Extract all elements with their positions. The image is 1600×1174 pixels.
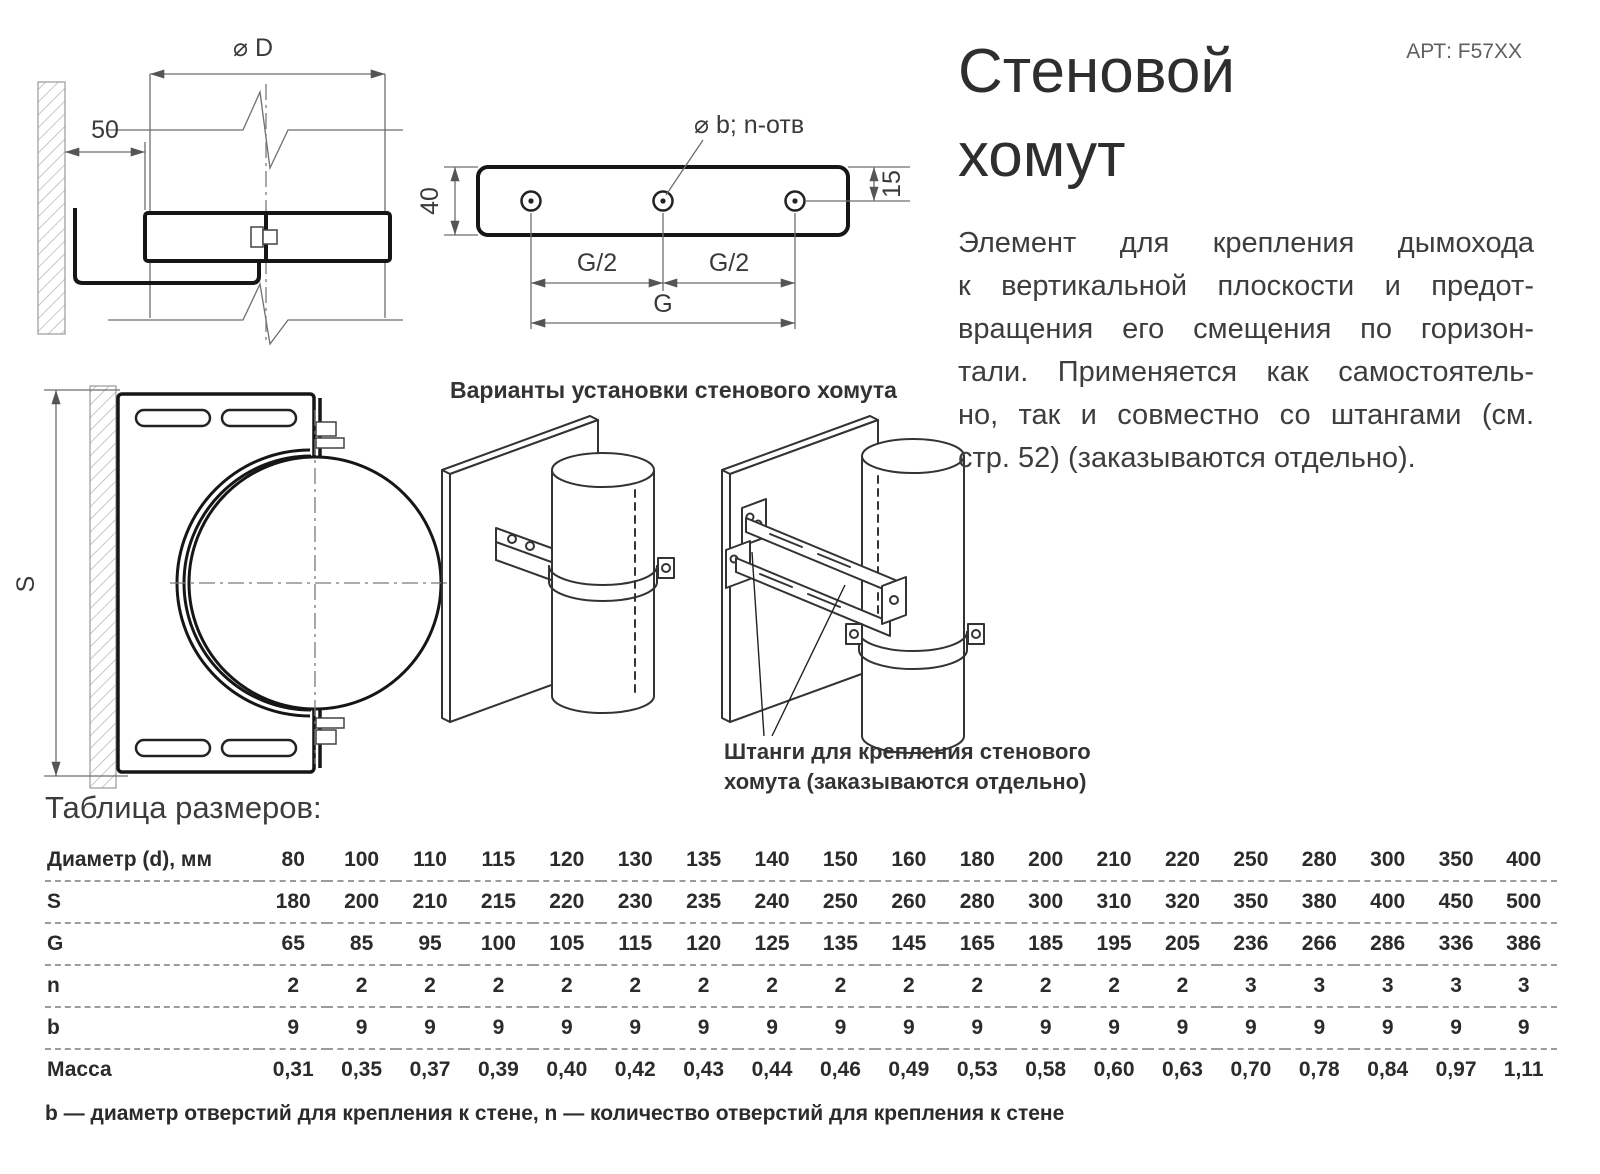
size-table-footnote: b — диаметр отверстий для крепления к ст… (45, 1102, 1064, 1126)
size-table-cell: 235 (669, 881, 737, 923)
size-table-cell: 2 (396, 965, 464, 1007)
size-table-cell: 300 (1354, 840, 1422, 881)
dim-height-label: 40 (416, 187, 444, 215)
size-table-cell: 320 (1148, 881, 1216, 923)
dim-wall-offset-label: 50 (91, 116, 119, 144)
size-table-cell: 9 (1354, 1007, 1422, 1049)
size-table-cell: 2 (738, 965, 806, 1007)
size-table-cell: 110 (396, 840, 464, 881)
size-table-cell: 9 (1148, 1007, 1216, 1049)
size-table-cell: 9 (738, 1007, 806, 1049)
page-title-line1: Стеновой (958, 30, 1235, 114)
size-table-cell: 180 (259, 881, 327, 923)
size-table-cell: 120 (669, 923, 737, 965)
size-table-row-label: b (45, 1007, 259, 1049)
size-table-row-label: G (45, 923, 259, 965)
size-table-body: Диаметр (d), мм8010011011512013013514015… (45, 840, 1557, 1090)
size-table-cell: 3 (1354, 965, 1422, 1007)
front-view-drawing: S (8, 372, 478, 802)
size-table-cell: 0,40 (533, 1049, 601, 1090)
size-table-cell: 145 (875, 923, 943, 965)
size-table: Диаметр (d), мм8010011011512013013514015… (45, 840, 1557, 1090)
size-table-cell: 230 (601, 881, 669, 923)
description-line: но, так и совместно со штангами (см. (958, 394, 1534, 437)
dim-half-span-left-label: G/2 (577, 249, 617, 277)
size-table-row: S180200210215220230235240250260280300310… (45, 881, 1557, 923)
size-table-cell: 120 (533, 840, 601, 881)
size-table-cell: 0,44 (738, 1049, 806, 1090)
size-table-cell: 2 (943, 965, 1011, 1007)
description-line: тали. Применяется как самостоятель- (958, 351, 1534, 394)
size-table-cell: 500 (1490, 881, 1557, 923)
size-table-cell: 140 (738, 840, 806, 881)
dim-diameter-label: ⌀ D (233, 34, 273, 62)
size-table-cell: 3 (1422, 965, 1490, 1007)
size-table-row-label: S (45, 881, 259, 923)
size-table-cell: 0,49 (875, 1049, 943, 1090)
size-table-cell: 100 (464, 923, 532, 965)
size-table-cell: 266 (1285, 923, 1353, 965)
size-table-cell: 3 (1217, 965, 1285, 1007)
size-table-cell: 2 (1148, 965, 1216, 1007)
size-table-cell: 0,39 (464, 1049, 532, 1090)
size-table-row-label: n (45, 965, 259, 1007)
size-table-cell: 0,35 (327, 1049, 395, 1090)
size-table-cell: 2 (533, 965, 601, 1007)
wall-hatch (38, 82, 65, 334)
size-table-cell: 3 (1490, 965, 1557, 1007)
description-line: вращения его смещения по горизон- (958, 308, 1534, 351)
size-table-cell: 9 (1011, 1007, 1079, 1049)
size-table-cell: 450 (1422, 881, 1490, 923)
size-table-cell: 85 (327, 923, 395, 965)
size-table-cell: 9 (669, 1007, 737, 1049)
size-table-cell: 220 (1148, 840, 1216, 881)
size-table-cell: 0,46 (806, 1049, 874, 1090)
size-table-cell: 9 (1285, 1007, 1353, 1049)
size-table-cell: 9 (1490, 1007, 1557, 1049)
size-table-cell: 260 (875, 881, 943, 923)
pipe-break-top (108, 92, 403, 168)
size-table-cell: 250 (806, 881, 874, 923)
size-table-row: b9999999999999999999 (45, 1007, 1557, 1049)
size-table-cell: 0,58 (1011, 1049, 1079, 1090)
size-table-cell: 2 (327, 965, 395, 1007)
size-table-cell: 9 (327, 1007, 395, 1049)
size-table-row: n2222222222222233333 (45, 965, 1557, 1007)
size-table-cell: 125 (738, 923, 806, 965)
size-table-cell: 240 (738, 881, 806, 923)
size-table-cell: 195 (1080, 923, 1148, 965)
size-table-cell: 2 (806, 965, 874, 1007)
strip-view-drawing: ⌀ b; n-отв 40 15 G/2 G/2 G (398, 95, 918, 345)
size-table-cell: 0,97 (1422, 1049, 1490, 1090)
dim-s-label: S (12, 576, 40, 593)
size-table-cell: 9 (1080, 1007, 1148, 1049)
catalog-page: ⌀ D 50 ⌀ b; n-отв 40 (0, 0, 1600, 1174)
size-table-cell: 250 (1217, 840, 1285, 881)
size-table-cell: 150 (806, 840, 874, 881)
size-table-cell: 205 (1148, 923, 1216, 965)
size-table-cell: 9 (259, 1007, 327, 1049)
size-table-cell: 2 (464, 965, 532, 1007)
dim-full-span-label: G (653, 290, 672, 318)
size-table-cell: 2 (1011, 965, 1079, 1007)
size-table-cell: 0,60 (1080, 1049, 1148, 1090)
size-table-cell: 0,37 (396, 1049, 464, 1090)
dim-half-span-right-label: G/2 (709, 249, 749, 277)
size-table-cell: 2 (601, 965, 669, 1007)
page-title-line2: хомут (958, 114, 1235, 198)
size-table-cell: 0,78 (1285, 1049, 1353, 1090)
size-table-cell: 135 (806, 923, 874, 965)
size-table-cell: 336 (1422, 923, 1490, 965)
size-table-cell: 0,43 (669, 1049, 737, 1090)
wall-hatch (90, 386, 116, 788)
holes-callout-label: ⌀ b; n-отв (694, 111, 804, 139)
size-table-cell: 0,63 (1148, 1049, 1216, 1090)
size-table-cell: 9 (1422, 1007, 1490, 1049)
size-table-cell: 185 (1011, 923, 1079, 965)
article-number: АРТ: F57XX (1406, 40, 1522, 64)
size-table-cell: 9 (806, 1007, 874, 1049)
size-table-cell: 0,42 (601, 1049, 669, 1090)
size-table-cell: 165 (943, 923, 1011, 965)
size-table-cell: 200 (1011, 840, 1079, 881)
pipe-break-bottom (108, 284, 403, 344)
side-view-drawing: ⌀ D 50 (8, 30, 418, 350)
size-table-cell: 1,11 (1490, 1049, 1557, 1090)
size-table-cell: 286 (1354, 923, 1422, 965)
size-table-cell: 200 (327, 881, 395, 923)
size-table-cell: 9 (601, 1007, 669, 1049)
bolt (251, 227, 263, 247)
size-table-cell: 9 (396, 1007, 464, 1049)
description-line: стр. 52) (заказываются отдельно). (958, 437, 1534, 480)
size-table-cell: 9 (875, 1007, 943, 1049)
size-table-cell: 65 (259, 923, 327, 965)
size-table-cell: 115 (464, 840, 532, 881)
size-table-cell: 0,31 (259, 1049, 327, 1090)
size-table-cell: 95 (396, 923, 464, 965)
size-table-cell: 310 (1080, 881, 1148, 923)
size-table-cell: 2 (669, 965, 737, 1007)
size-table-cell: 350 (1422, 840, 1490, 881)
size-table-cell: 0,70 (1217, 1049, 1285, 1090)
size-table-cell: 2 (259, 965, 327, 1007)
size-table-cell: 115 (601, 923, 669, 965)
size-table-cell: 180 (943, 840, 1011, 881)
size-table-cell: 3 (1285, 965, 1353, 1007)
size-table-cell: 9 (1217, 1007, 1285, 1049)
size-table-cell: 350 (1217, 881, 1285, 923)
size-table-row: Диаметр (d), мм8010011011512013013514015… (45, 840, 1557, 881)
description-line: к вертикальной плоскости и предот- (958, 265, 1534, 308)
size-table-cell: 9 (943, 1007, 1011, 1049)
size-table-cell: 160 (875, 840, 943, 881)
size-table-cell: 0,53 (943, 1049, 1011, 1090)
size-table-cell: 400 (1354, 881, 1422, 923)
size-table-row-label: Диаметр (d), мм (45, 840, 259, 881)
size-table-cell: 105 (533, 923, 601, 965)
description-line: Элемент для крепления дымохода (958, 222, 1534, 265)
size-table-cell: 0,84 (1354, 1049, 1422, 1090)
size-table-cell: 100 (327, 840, 395, 881)
dim-hole-edge-label: 15 (878, 170, 906, 198)
variants-caption: Варианты установки стенового хомута (450, 377, 897, 404)
size-table-cell: 220 (533, 881, 601, 923)
size-table-cell: 130 (601, 840, 669, 881)
rods-caption-line1: Штанги для крепления стенового (724, 737, 1091, 767)
size-table-heading: Таблица размеров: (45, 790, 322, 826)
page-title: Стеновой хомут (958, 30, 1235, 198)
variant-direct-mount (442, 416, 674, 722)
size-table-cell: 400 (1490, 840, 1557, 881)
size-table-cell: 2 (1080, 965, 1148, 1007)
size-table-cell: 280 (943, 881, 1011, 923)
size-table-row: Масса0,310,350,370,390,400,420,430,440,4… (45, 1049, 1557, 1090)
size-table-row-label: Масса (45, 1049, 259, 1090)
size-table-cell: 210 (396, 881, 464, 923)
size-table-cell: 280 (1285, 840, 1353, 881)
size-table-cell: 80 (259, 840, 327, 881)
size-table-cell: 135 (669, 840, 737, 881)
size-table-cell: 9 (464, 1007, 532, 1049)
size-table-cell: 300 (1011, 881, 1079, 923)
size-table-cell: 236 (1217, 923, 1285, 965)
size-table-cell: 9 (533, 1007, 601, 1049)
size-table-row: G658595100105115120125135145165185195205… (45, 923, 1557, 965)
size-table-cell: 2 (875, 965, 943, 1007)
size-table-cell: 210 (1080, 840, 1148, 881)
size-table-cell: 215 (464, 881, 532, 923)
rods-caption: Штанги для крепления стенового хомута (з… (724, 737, 1091, 797)
size-table-cell: 380 (1285, 881, 1353, 923)
product-description: Элемент для крепления дымохода к вертика… (958, 222, 1534, 480)
rods-caption-line2: хомута (заказываются отдельно) (724, 767, 1091, 797)
size-table-cell: 386 (1490, 923, 1557, 965)
